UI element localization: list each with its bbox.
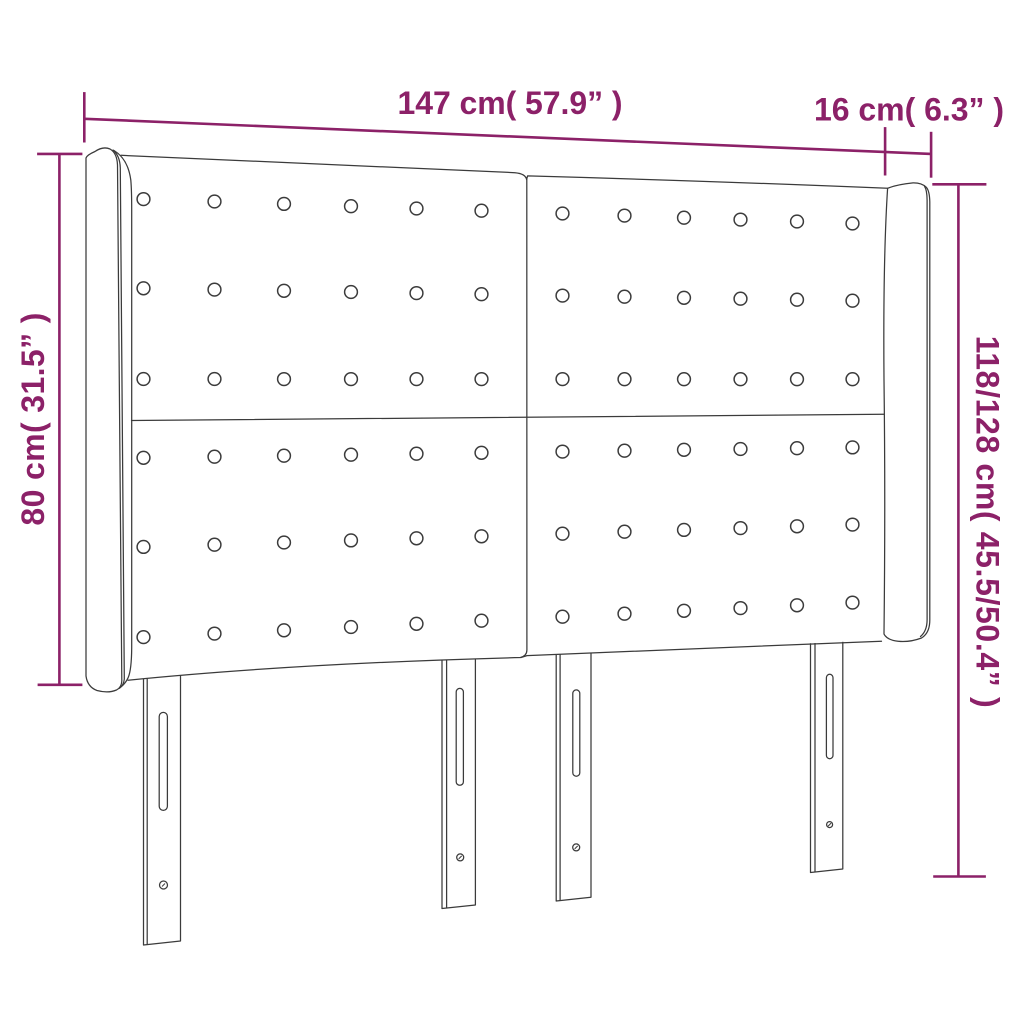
svg-text:16 cm( 6.3” ): 16 cm( 6.3” ): [814, 91, 1004, 127]
svg-text:118/128 cm( 45.5/50.4” ): 118/128 cm( 45.5/50.4” ): [970, 336, 1006, 708]
svg-text:147 cm( 57.9” ): 147 cm( 57.9” ): [398, 85, 623, 121]
svg-text:80 cm( 31.5” ): 80 cm( 31.5” ): [15, 313, 51, 526]
